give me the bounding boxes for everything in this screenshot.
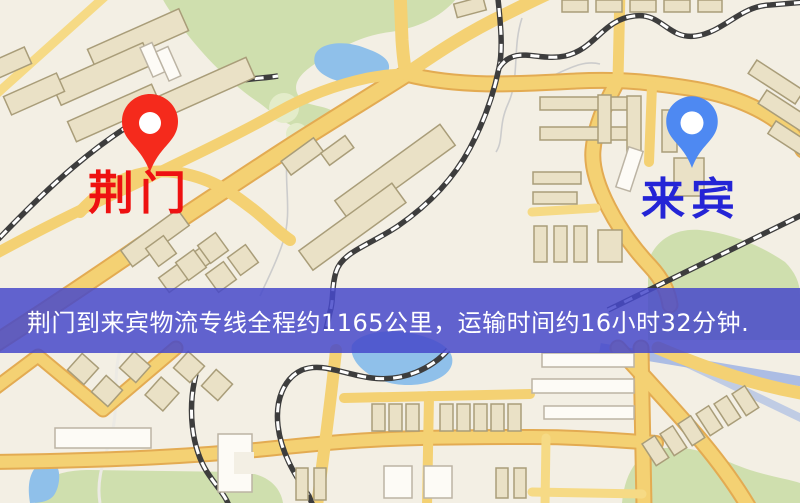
map-background	[0, 0, 800, 503]
route-info-text: 荆门到来宾物流专线全程约1165公里，运输时间约16小时32分钟.	[0, 303, 749, 338]
route-info-banner: 荆门到来宾物流专线全程约1165公里，运输时间约16小时32分钟.	[0, 288, 800, 353]
map-view: 荆门 来宾 荆门到来宾物流专线全程约1165公里，运输时间约16小时32分钟.	[0, 0, 800, 503]
destination-city-label: 来宾	[641, 178, 741, 222]
origin-city-label: 荆门	[88, 170, 192, 216]
